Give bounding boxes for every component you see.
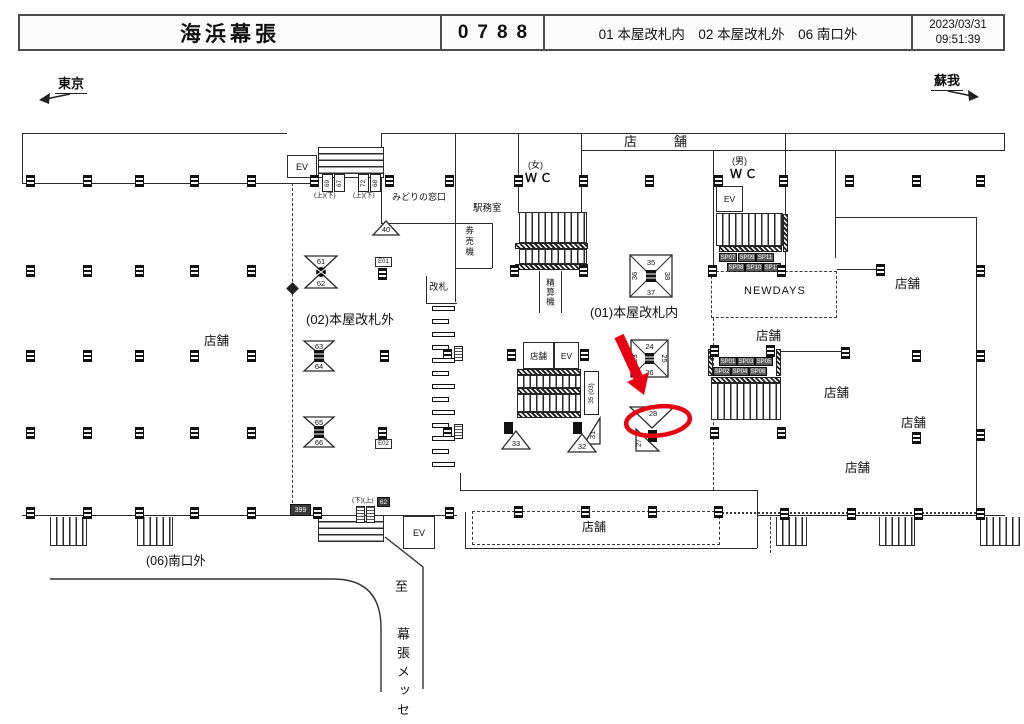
date-text: 2023/03/31 <box>929 18 987 33</box>
column-marker <box>310 175 319 187</box>
boundary-node <box>286 282 299 295</box>
elevator: EV <box>403 516 435 549</box>
ticket-gate-bar <box>432 462 455 467</box>
column-marker <box>579 175 588 187</box>
svg-text:64: 64 <box>315 362 323 371</box>
column-marker <box>976 350 985 362</box>
wall <box>426 276 427 303</box>
stair-direction-label: (下)(上) <box>352 497 374 504</box>
sign-62b: 62 <box>377 497 390 507</box>
wall <box>713 151 714 268</box>
sign-sp09: SP09 <box>738 253 756 262</box>
shop-label: 店舗 <box>895 277 920 291</box>
column-marker <box>976 508 985 520</box>
area02-label: (02)本屋改札外 <box>306 313 394 328</box>
stair-rail <box>783 214 788 252</box>
wall <box>776 351 842 352</box>
stairs <box>716 213 783 246</box>
stairs <box>517 394 581 412</box>
wall <box>22 183 318 184</box>
svg-text:37: 37 <box>647 288 655 297</box>
station-name: 海浜幕張 <box>20 16 440 49</box>
svg-text:40: 40 <box>382 225 390 234</box>
stairs <box>137 517 173 546</box>
column-marker <box>645 175 654 187</box>
svg-text:31: 31 <box>588 431 597 439</box>
wall <box>976 217 977 515</box>
sign-cluster-35-38: 35 37 36 38 <box>629 254 673 298</box>
sign-69: 69 <box>322 174 333 192</box>
column-marker <box>847 508 856 520</box>
column-marker <box>247 265 256 277</box>
wall <box>835 217 976 218</box>
stairs <box>980 517 1020 546</box>
svg-text:38: 38 <box>663 272 672 280</box>
svg-text:32: 32 <box>578 442 586 451</box>
column-marker <box>385 175 394 187</box>
sign-68: 68 <box>370 174 381 192</box>
fare-adjust-label: 精算機 <box>545 278 557 307</box>
column-marker <box>313 507 322 519</box>
title-bar: 海浜幕張 0788 01 本屋改札内 02 本屋改札外 06 南口外 2023/… <box>18 14 1005 51</box>
stairs <box>50 517 87 546</box>
time-text: 09:51:39 <box>936 33 981 48</box>
svg-text:63: 63 <box>315 342 323 351</box>
column-marker <box>190 427 199 439</box>
svg-text:25: 25 <box>660 354 669 362</box>
column-marker <box>976 175 985 187</box>
wc-female-tag: (女) <box>528 160 543 170</box>
ticket-gate-bar <box>432 345 449 350</box>
station-code: 0788 <box>440 16 543 49</box>
ticket-gate-bar <box>432 384 455 389</box>
column-marker <box>912 175 921 187</box>
wall <box>465 548 757 549</box>
column-marker <box>247 427 256 439</box>
ticket-machine-label: 券売機 <box>464 226 474 258</box>
column-marker <box>514 506 523 518</box>
sign-sp01: SP01 <box>719 357 737 366</box>
column-marker <box>445 175 454 187</box>
wall <box>492 223 493 268</box>
column-marker <box>510 265 519 277</box>
shop-booth: 店舗 <box>523 342 554 369</box>
column-marker <box>710 427 719 439</box>
wall <box>22 133 287 134</box>
column-marker <box>777 265 786 277</box>
column-marker <box>190 265 199 277</box>
column-marker <box>445 507 454 519</box>
sign-e01: E01 <box>375 257 392 267</box>
destination-place: 幕張メッセ <box>394 627 409 722</box>
area06-label: (06)南口外 <box>146 554 206 568</box>
sign-cluster-31-32-33: 33 31 32 <box>498 414 604 456</box>
ticket-gate-bar <box>432 449 449 454</box>
wall <box>835 151 836 258</box>
elevator: EV <box>554 342 579 369</box>
column-marker <box>710 345 719 357</box>
column-marker <box>380 350 389 362</box>
column-marker <box>190 507 199 519</box>
gate-label: 改札 <box>429 283 448 294</box>
column-marker <box>514 175 523 187</box>
ticket-gate-bar <box>432 423 449 428</box>
column-marker <box>135 350 144 362</box>
stair-sign <box>366 506 375 523</box>
column-marker <box>83 507 92 519</box>
station-office-label: 駅務室 <box>473 204 502 215</box>
column-marker <box>247 175 256 187</box>
wc-male-tag: (男) <box>732 156 747 166</box>
sign-sp06: SP06 <box>749 367 767 376</box>
column-marker <box>976 265 985 277</box>
column-marker <box>779 175 788 187</box>
column-marker <box>83 265 92 277</box>
area-boundary-dashed <box>770 517 771 553</box>
column-marker <box>714 175 723 187</box>
elevator: EV <box>716 186 743 212</box>
column-marker <box>841 347 850 359</box>
column-marker <box>912 432 921 444</box>
fare-adjust-box: 精算機 <box>539 271 562 313</box>
column-marker <box>845 175 854 187</box>
svg-text:36: 36 <box>630 272 639 280</box>
wall <box>455 133 456 302</box>
column-marker <box>247 350 256 362</box>
column-marker <box>976 429 985 441</box>
stairs <box>879 517 915 546</box>
sign-399: 399 <box>290 504 311 516</box>
ticket-gate-bar <box>432 332 455 337</box>
column-marker <box>83 350 92 362</box>
column-marker <box>780 508 789 520</box>
ticket-gate-bar <box>432 358 455 363</box>
svg-text:35: 35 <box>647 258 655 267</box>
shop-label: 店舗 <box>901 416 926 430</box>
wall <box>381 133 583 134</box>
right-arrow-icon <box>946 87 982 103</box>
svg-text:33: 33 <box>512 439 520 448</box>
sign-67: 67 <box>334 174 345 192</box>
sign-sp03: SP03 <box>737 357 755 366</box>
sign-35-03: 35 (03) <box>584 371 599 415</box>
sign-sp02: SP02 <box>713 367 731 376</box>
column-marker <box>708 265 717 277</box>
sign-pair-65-66: 65 66 <box>303 416 335 448</box>
wall <box>455 268 492 269</box>
ticket-gate-bar <box>432 371 449 376</box>
column-marker <box>190 175 199 187</box>
wc-female-label: ＷＣ <box>525 172 555 186</box>
wall <box>22 133 23 183</box>
sign-pair-61-62: 61 62 <box>304 255 338 289</box>
gate-sign <box>454 346 463 361</box>
sign-sp04: SP04 <box>731 367 749 376</box>
shop-label: 店舗 <box>204 334 229 348</box>
sign-pair-63-64: 63 64 <box>303 340 335 372</box>
area-boundary-dashed <box>292 183 293 513</box>
column-marker <box>26 175 35 187</box>
wall <box>426 303 457 304</box>
shop-strip-label: 店 舗 <box>624 135 699 150</box>
sign-sp07: SP07 <box>719 253 737 262</box>
column-marker <box>714 506 723 518</box>
midori-office-label: みどりの窓口 <box>392 192 446 202</box>
svg-text:61: 61 <box>317 257 325 266</box>
newdays-label: NEWDAYS <box>744 285 806 298</box>
ticket-gate-bar <box>432 436 455 441</box>
svg-text:66: 66 <box>315 438 323 447</box>
column-marker <box>26 507 35 519</box>
red-arrow-annotation <box>608 328 658 398</box>
sign-sp05: SP05 <box>755 357 773 366</box>
road-lines <box>0 0 1024 724</box>
column-marker <box>914 508 923 520</box>
stair-rail <box>719 246 782 252</box>
stair-direction-label: (上)(下) <box>353 192 375 199</box>
location-list: 01 本屋改札内 02 本屋改札外 06 南口外 <box>543 16 911 49</box>
ticket-gate-bar <box>432 397 449 402</box>
sign-e02: E02 <box>375 439 392 449</box>
column-marker <box>135 265 144 277</box>
column-marker <box>766 345 775 357</box>
stairs <box>517 375 581 388</box>
ticket-gate-bar <box>432 410 455 415</box>
destination-to: 至 <box>395 580 408 595</box>
stair-sign <box>356 506 365 523</box>
column-marker <box>247 507 256 519</box>
red-circle-annotation <box>622 402 694 442</box>
wall <box>465 512 466 548</box>
wall <box>460 490 757 491</box>
column-marker <box>83 427 92 439</box>
wall <box>518 133 519 213</box>
ticket-gate-bar <box>432 319 449 324</box>
left-arrow-icon <box>38 90 72 106</box>
column-marker <box>579 265 588 277</box>
wall <box>837 269 877 270</box>
column-marker <box>26 350 35 362</box>
shop-label: 店舗 <box>824 386 849 400</box>
sign-40-flag: 40 <box>371 219 401 237</box>
sign-72: 72 <box>358 174 369 192</box>
area01-label: (01)本屋改札内 <box>590 306 678 321</box>
stairs <box>776 517 807 546</box>
column-marker <box>876 264 885 276</box>
wc-male-label: ＷＣ <box>730 168 760 182</box>
column-marker <box>135 175 144 187</box>
gate-sign <box>454 424 463 439</box>
column-marker <box>26 427 35 439</box>
column-marker <box>580 349 589 361</box>
shop-label: 店舗 <box>756 329 781 343</box>
station-map-document: 海浜幕張 0788 01 本屋改札内 02 本屋改札外 06 南口外 2023/… <box>0 0 1024 724</box>
stairs <box>519 212 587 243</box>
column-marker <box>507 349 516 361</box>
column-marker <box>26 265 35 277</box>
column-marker <box>777 427 786 439</box>
column-marker <box>581 506 590 518</box>
wall <box>757 490 758 548</box>
svg-text:62: 62 <box>317 279 325 288</box>
shop-label: 店舗 <box>845 461 870 475</box>
column-marker <box>648 506 657 518</box>
column-marker <box>83 175 92 187</box>
ticket-gate-bar <box>432 306 455 311</box>
wall <box>757 515 1005 516</box>
timestamp: 2023/03/31 09:51:39 <box>911 16 1003 49</box>
stair-direction-label: (上)(下) <box>314 192 336 199</box>
wall <box>460 473 461 490</box>
sign-sp11: SP11 <box>756 253 774 262</box>
column-marker <box>135 427 144 439</box>
stairs <box>519 249 587 264</box>
stair-rail <box>776 349 781 376</box>
column-marker <box>378 268 387 280</box>
column-marker <box>378 427 387 439</box>
column-marker <box>190 350 199 362</box>
shop-label: 店舗 <box>582 521 606 535</box>
column-marker <box>135 507 144 519</box>
column-marker <box>912 350 921 362</box>
stairs <box>711 383 781 420</box>
stair-rail <box>515 264 588 270</box>
svg-text:65: 65 <box>315 418 323 427</box>
